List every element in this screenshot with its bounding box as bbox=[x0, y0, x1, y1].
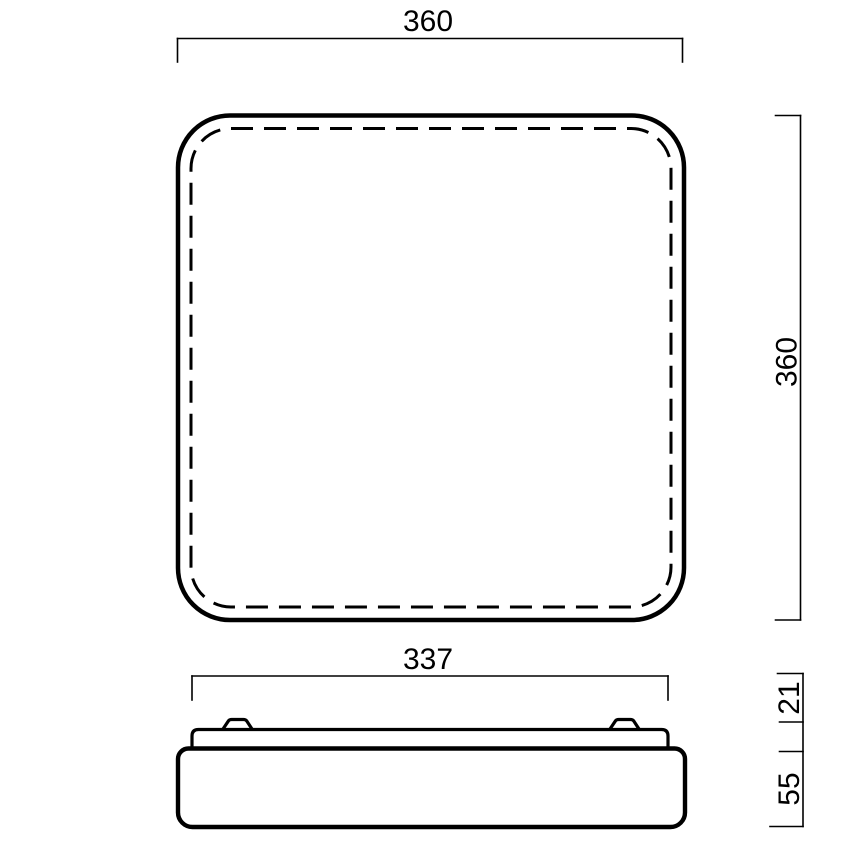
top-view-inner-dashed-outline bbox=[191, 129, 671, 608]
top-width-dimension-label: 360 bbox=[403, 5, 453, 38]
top-view-height-dimension-label: 360 bbox=[771, 337, 804, 387]
technical-dimension-drawing: 360 360 337 21 55 bbox=[0, 0, 850, 850]
side-view bbox=[178, 720, 685, 828]
side-upper-height-dimension-label: 21 bbox=[773, 681, 806, 714]
top-width-dimension: 360 bbox=[178, 5, 683, 62]
top-view-height-dimension: 360 bbox=[771, 116, 804, 621]
top-view bbox=[178, 116, 684, 621]
side-view-diffuser-body bbox=[178, 749, 685, 828]
side-view-mounting-clip-right bbox=[610, 720, 639, 730]
side-width-dimension-label: 337 bbox=[403, 643, 453, 676]
side-view-mounting-clip-left bbox=[223, 720, 252, 730]
top-view-outer-outline bbox=[178, 116, 684, 621]
side-body-height-dimension-label: 55 bbox=[773, 772, 806, 805]
side-width-dimension: 337 bbox=[192, 643, 668, 700]
drawing-canvas: 360 360 337 21 55 bbox=[0, 0, 850, 850]
side-height-dimensions: 21 55 bbox=[770, 674, 806, 827]
